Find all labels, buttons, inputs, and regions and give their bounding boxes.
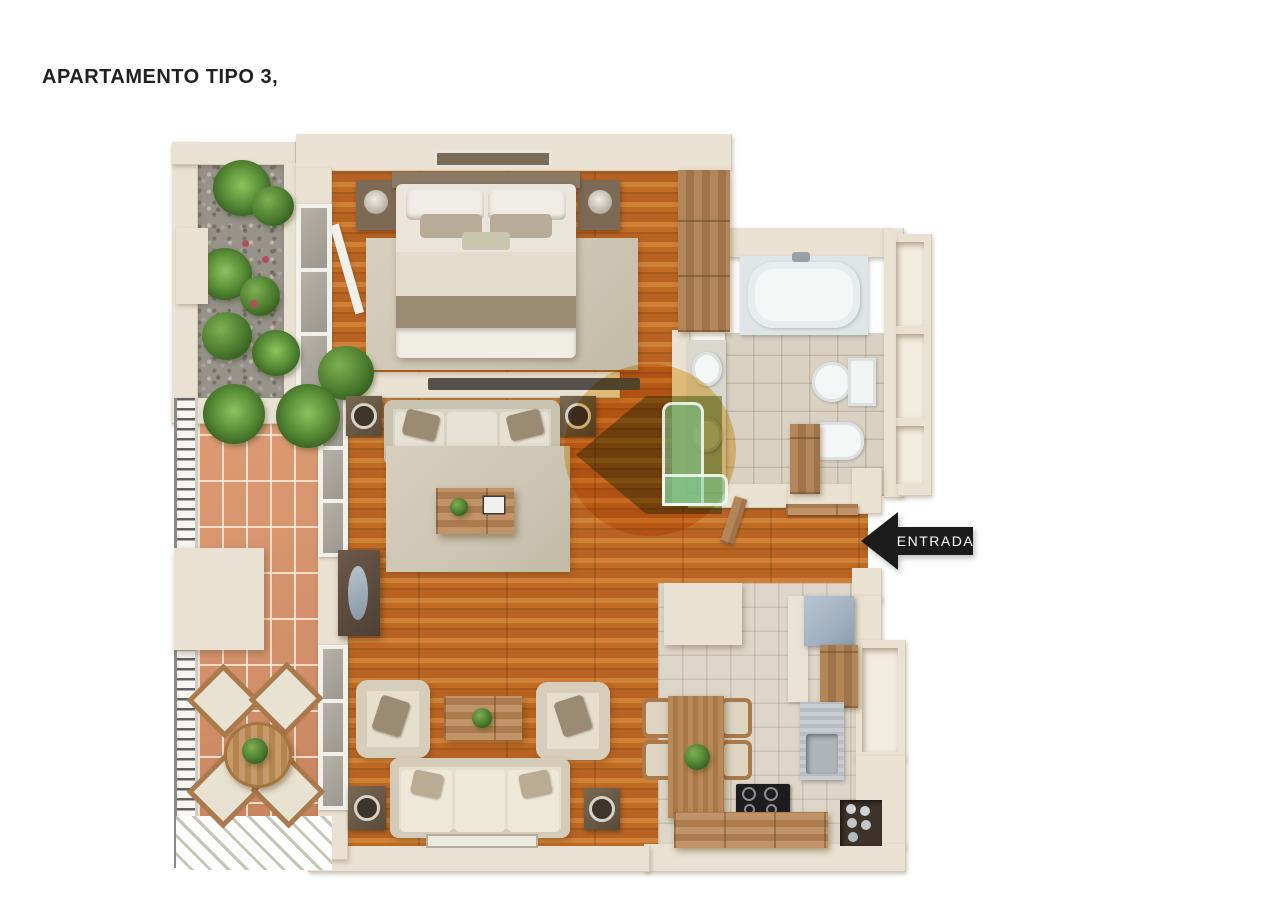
watermark-letter-foot — [662, 474, 728, 506]
bathroom-wall-niche — [896, 334, 924, 418]
kitchen-bottom-wall — [644, 844, 906, 872]
bedside-lamp-right — [588, 190, 612, 214]
wine-bottle-icon — [860, 806, 870, 816]
speaker — [584, 788, 620, 830]
sofa-cushion — [455, 770, 506, 832]
speaker-cone-icon — [354, 795, 380, 821]
bedroom-picture-frame — [434, 150, 552, 168]
floor-plan-image: ENTRADA APARTAMENTO TIPO 3, — [0, 0, 1280, 906]
wine-bottle-icon — [848, 832, 858, 842]
entry-door — [786, 504, 858, 515]
kitchen-sink-basin — [806, 734, 838, 774]
bed-blanket-fold — [396, 328, 576, 358]
bed-blanket-band — [396, 296, 576, 328]
terrace-storage-box — [174, 548, 264, 650]
terrace-table-plant — [242, 738, 268, 764]
bidet — [814, 422, 864, 460]
window-pane — [323, 703, 343, 753]
window-pane — [323, 756, 343, 806]
bathtub — [748, 262, 860, 328]
window-pane — [323, 503, 343, 553]
bathtub-faucet — [792, 252, 810, 262]
kitchen-right-wall-upper — [854, 596, 882, 646]
window-pane — [323, 649, 343, 699]
kitchen-tall-cabinet — [664, 583, 742, 645]
dining-chair — [646, 744, 670, 776]
garden-planter-box — [176, 228, 208, 304]
bedroom-window-wall — [296, 168, 332, 206]
coffee-table-book — [484, 497, 504, 513]
living-bottom-wall — [308, 846, 650, 872]
speaker-cone-icon — [351, 403, 377, 429]
terrace-plant — [203, 384, 265, 444]
entrance-label: ENTRADA — [900, 527, 971, 555]
wine-bottle-icon — [846, 804, 856, 814]
bedside-lamp-left — [364, 190, 388, 214]
kitchen-wall-cabinet — [820, 645, 858, 708]
plan-title: APARTAMENTO TIPO 3, — [42, 66, 278, 89]
window-pane — [323, 450, 343, 500]
coffee-table-plant — [450, 498, 468, 516]
living-window-lower — [318, 645, 348, 810]
bathroom-vanity-cabinet — [790, 424, 820, 494]
tv-screen — [348, 566, 368, 620]
cooktop-burner-icon — [764, 787, 778, 801]
kitchen-base-counter — [674, 812, 828, 848]
toilet-tank — [848, 358, 876, 406]
doormat — [426, 834, 538, 848]
bed-pillow-small — [462, 232, 510, 250]
kitchen-wall-niche — [862, 648, 898, 752]
dining-chair — [724, 702, 748, 734]
garden-flower — [242, 240, 249, 247]
garden-plant — [252, 330, 300, 376]
window-pane — [301, 272, 327, 332]
fridge — [804, 596, 854, 646]
toilet-bowl — [812, 362, 852, 402]
garden-flower — [250, 300, 258, 308]
bathroom-wall-niche — [896, 242, 924, 326]
speaker — [346, 396, 382, 436]
window-pane — [301, 208, 327, 268]
dining-table-plant — [684, 744, 710, 770]
garden-plant — [252, 186, 294, 226]
wardrobe — [678, 170, 730, 332]
garden-plant — [240, 276, 280, 316]
speaker-cone-icon — [589, 796, 615, 822]
wine-bottle-icon — [847, 818, 857, 828]
cooktop-burner-icon — [742, 787, 756, 801]
bed-sheet — [396, 252, 576, 296]
terrace-deck-stripes — [176, 816, 332, 870]
garden-flower — [262, 256, 269, 263]
dining-chair — [724, 744, 748, 776]
bathroom-wall-niche — [896, 426, 924, 484]
coffee-table-plant — [472, 708, 492, 728]
speaker — [348, 786, 386, 830]
dining-chair — [646, 702, 670, 734]
wine-bottle-icon — [861, 820, 871, 830]
terrace-plant — [276, 384, 340, 448]
garden-plant — [202, 312, 252, 360]
